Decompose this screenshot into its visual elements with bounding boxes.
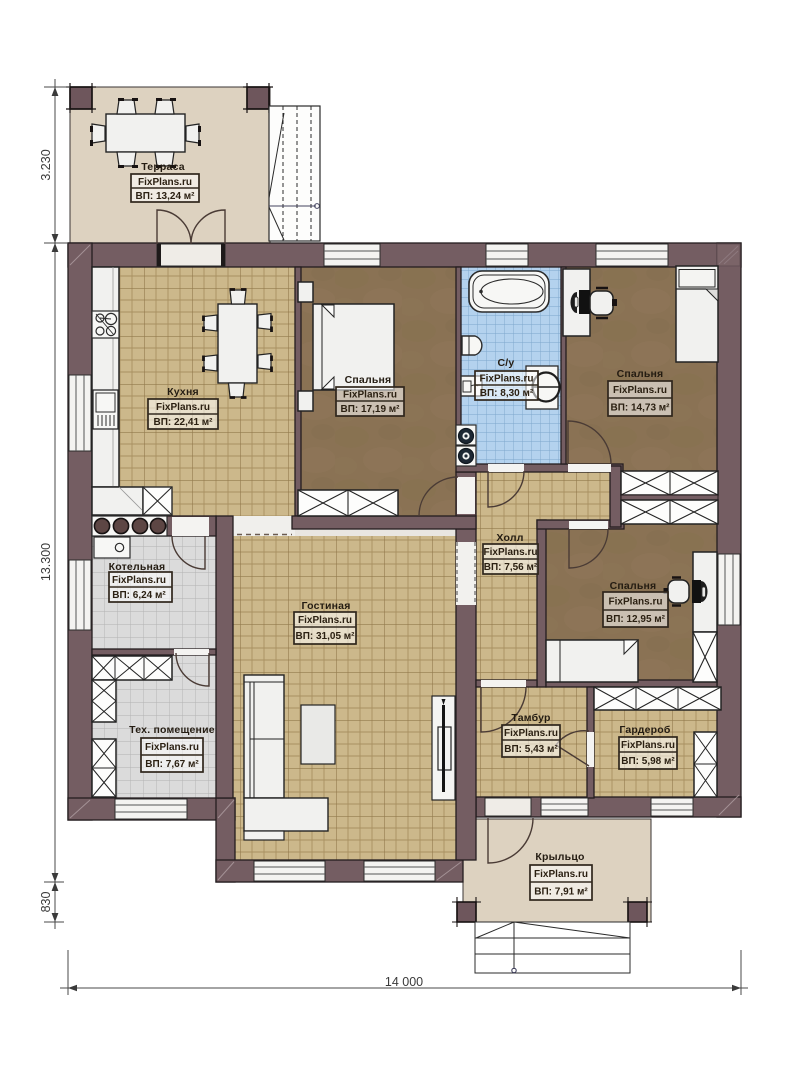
svg-text:С/у: С/у (498, 357, 515, 369)
svg-text:830: 830 (39, 892, 53, 913)
svg-text:Спальня: Спальня (617, 368, 664, 380)
svg-text:14 000: 14 000 (385, 975, 423, 989)
svg-text:ВП: 7,56 м²: ВП: 7,56 м² (484, 562, 538, 573)
svg-text:Гостиная: Гостиная (301, 600, 350, 612)
svg-text:3.230: 3.230 (39, 149, 53, 180)
svg-text:FixPlans.ru: FixPlans.ru (138, 177, 192, 188)
svg-text:ВП: 14,73 м²: ВП: 14,73 м² (610, 403, 670, 414)
svg-text:FixPlans.ru: FixPlans.ru (534, 869, 588, 880)
svg-text:ВП: 22,41 м²: ВП: 22,41 м² (153, 417, 213, 428)
svg-text:ВП: 17,19 м²: ВП: 17,19 м² (340, 404, 400, 415)
svg-text:Тамбур: Тамбур (511, 712, 550, 724)
svg-text:Терраса: Терраса (141, 161, 185, 173)
svg-text:Гардероб: Гардероб (619, 724, 671, 736)
svg-text:ВП: 7,91 м²: ВП: 7,91 м² (534, 887, 588, 898)
svg-text:Спальня: Спальня (610, 580, 657, 592)
svg-text:ВП: 12,95 м²: ВП: 12,95 м² (606, 614, 666, 625)
svg-text:FixPlans.ru: FixPlans.ru (112, 575, 166, 586)
svg-text:FixPlans.ru: FixPlans.ru (609, 597, 663, 608)
svg-text:FixPlans.ru: FixPlans.ru (145, 742, 199, 753)
svg-text:Спальня: Спальня (345, 374, 392, 386)
svg-text:FixPlans.ru: FixPlans.ru (504, 728, 558, 739)
svg-text:FixPlans.ru: FixPlans.ru (613, 385, 667, 396)
svg-text:FixPlans.ru: FixPlans.ru (484, 547, 538, 558)
svg-text:ВП: 5,98 м²: ВП: 5,98 м² (621, 756, 675, 767)
svg-text:FixPlans.ru: FixPlans.ru (621, 740, 675, 751)
svg-text:FixPlans.ru: FixPlans.ru (298, 615, 352, 626)
svg-text:FixPlans.ru: FixPlans.ru (156, 402, 210, 413)
svg-text:Тех. помещение: Тех. помещение (129, 724, 215, 736)
svg-text:ВП: 8,30 м²: ВП: 8,30 м² (480, 388, 534, 399)
svg-text:ВП: 5,43 м²: ВП: 5,43 м² (504, 744, 558, 755)
svg-text:Кухня: Кухня (167, 386, 199, 398)
svg-text:ВП: 31,05 м²: ВП: 31,05 м² (295, 631, 355, 642)
svg-text:Крыльцо: Крыльцо (535, 851, 584, 863)
svg-text:ВП: 6,24 м²: ВП: 6,24 м² (112, 590, 166, 601)
svg-text:FixPlans.ru: FixPlans.ru (343, 390, 397, 401)
svg-text:Холл: Холл (496, 532, 523, 544)
svg-text:ВП: 13,24 м²: ВП: 13,24 м² (135, 191, 195, 202)
svg-text:13.300: 13.300 (39, 543, 53, 581)
svg-text:ВП: 7,67 м²: ВП: 7,67 м² (145, 759, 199, 770)
svg-text:FixPlans.ru: FixPlans.ru (480, 374, 534, 385)
